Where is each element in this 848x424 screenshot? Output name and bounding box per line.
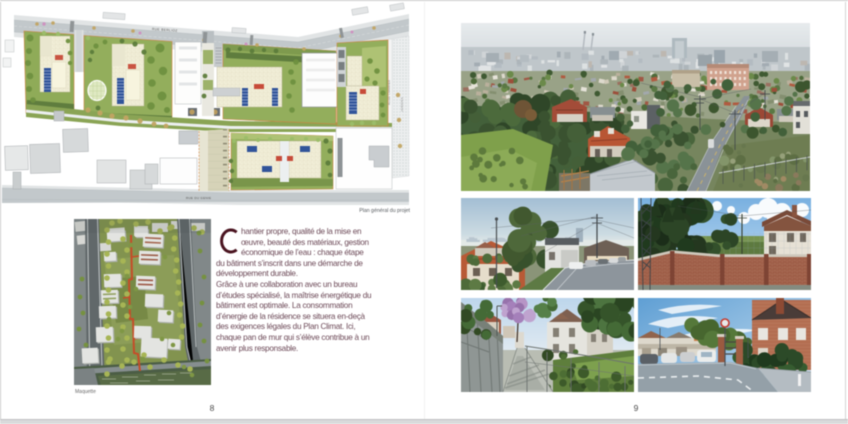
svg-text:RUE DU GENIE: RUE DU GENIE [186, 196, 211, 200]
svg-text:JARDINS: JARDINS [400, 97, 404, 112]
